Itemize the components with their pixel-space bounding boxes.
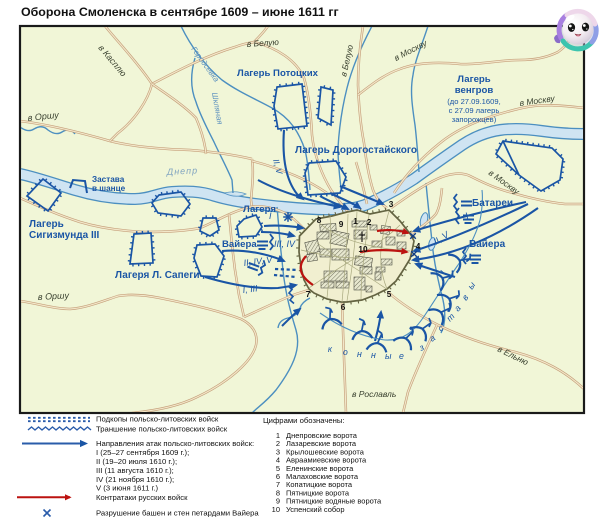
svg-text:Застава: Застава [92,175,125,184]
svg-text:Лагеря Л. Сапеги: Лагеря Л. Сапеги [115,270,200,281]
svg-text:V (3 июня 1611 г.): V (3 июня 1611 г.) [96,484,159,493]
svg-text:н: н [357,349,362,359]
svg-text:Разрушение башен и стен петард: Разрушение башен и стен петардами Вайера [96,509,259,518]
svg-text:Сигизмунда III: Сигизмунда III [29,230,100,241]
svg-text:II (19–20 июля 1610 г.);: II (19–20 июля 1610 г.); [96,457,177,466]
svg-text:2: 2 [367,217,372,227]
svg-text:3: 3 [389,199,394,209]
svg-text:I, III: I, III [242,283,259,295]
svg-text:о: о [343,347,348,357]
svg-text:запорожцев): запорожцев) [452,115,497,124]
svg-text:1: 1 [353,216,358,226]
svg-text:Днепр: Днепр [166,165,199,177]
svg-text:Оборона Смоленска в сентябре 1: Оборона Смоленска в сентябре 1609 – июне… [21,5,339,19]
svg-text:4: 4 [416,241,421,251]
svg-text:ы: ы [385,351,392,361]
svg-text:в Рославль: в Рославль [352,389,396,399]
svg-text:III (11 августа 1610 г.);: III (11 августа 1610 г.); [96,466,174,475]
svg-text:Вайера: Вайера [222,239,257,250]
svg-text:в шанце: в шанце [92,184,126,193]
svg-text:5: 5 [387,289,392,299]
svg-text:с 27.09 лагерь: с 27.09 лагерь [449,106,500,115]
svg-text:(до 27.09.1609,: (до 27.09.1609, [447,97,500,106]
svg-text:8: 8 [317,215,322,225]
svg-text:9: 9 [339,219,344,229]
svg-text:Вайера: Вайера [469,239,506,250]
svg-text:Траншение польско-литовских во: Траншение польско-литовских войск [96,425,228,434]
svg-text:III, IV: III, IV [274,239,296,249]
svg-text:Лагерь: Лагерь [457,74,490,85]
svg-text:Лагерь Потоцких: Лагерь Потоцких [237,68,319,79]
svg-text:Успенский собор: Успенский собор [286,505,345,514]
svg-text:в Оршу: в Оршу [38,290,70,302]
svg-text:6: 6 [341,302,346,312]
svg-text:Направления атак польско-литов: Направления атак польско-литовских войск… [96,439,254,448]
svg-text:I (25–27 сентября 1609 г.);: I (25–27 сентября 1609 г.); [96,448,189,457]
svg-text:Цифрами обозначены:: Цифрами обозначены: [263,416,345,425]
svg-text:венгров: венгров [455,85,494,96]
svg-text:Батареи: Батареи [472,198,513,209]
svg-text:е: е [399,351,404,361]
svg-text:Лагерь Дорогостайского: Лагерь Дорогостайского [295,145,417,156]
svg-text:Контратаки русских войск: Контратаки русских войск [96,493,188,502]
svg-text:10: 10 [358,244,368,254]
svg-text:7: 7 [306,289,311,299]
svg-text:Лагерь: Лагерь [29,219,64,230]
svg-text:Подкопы польско-литовских войс: Подкопы польско-литовских войск [96,415,219,424]
svg-text:н: н [371,350,376,360]
svg-text:10: 10 [272,505,280,514]
